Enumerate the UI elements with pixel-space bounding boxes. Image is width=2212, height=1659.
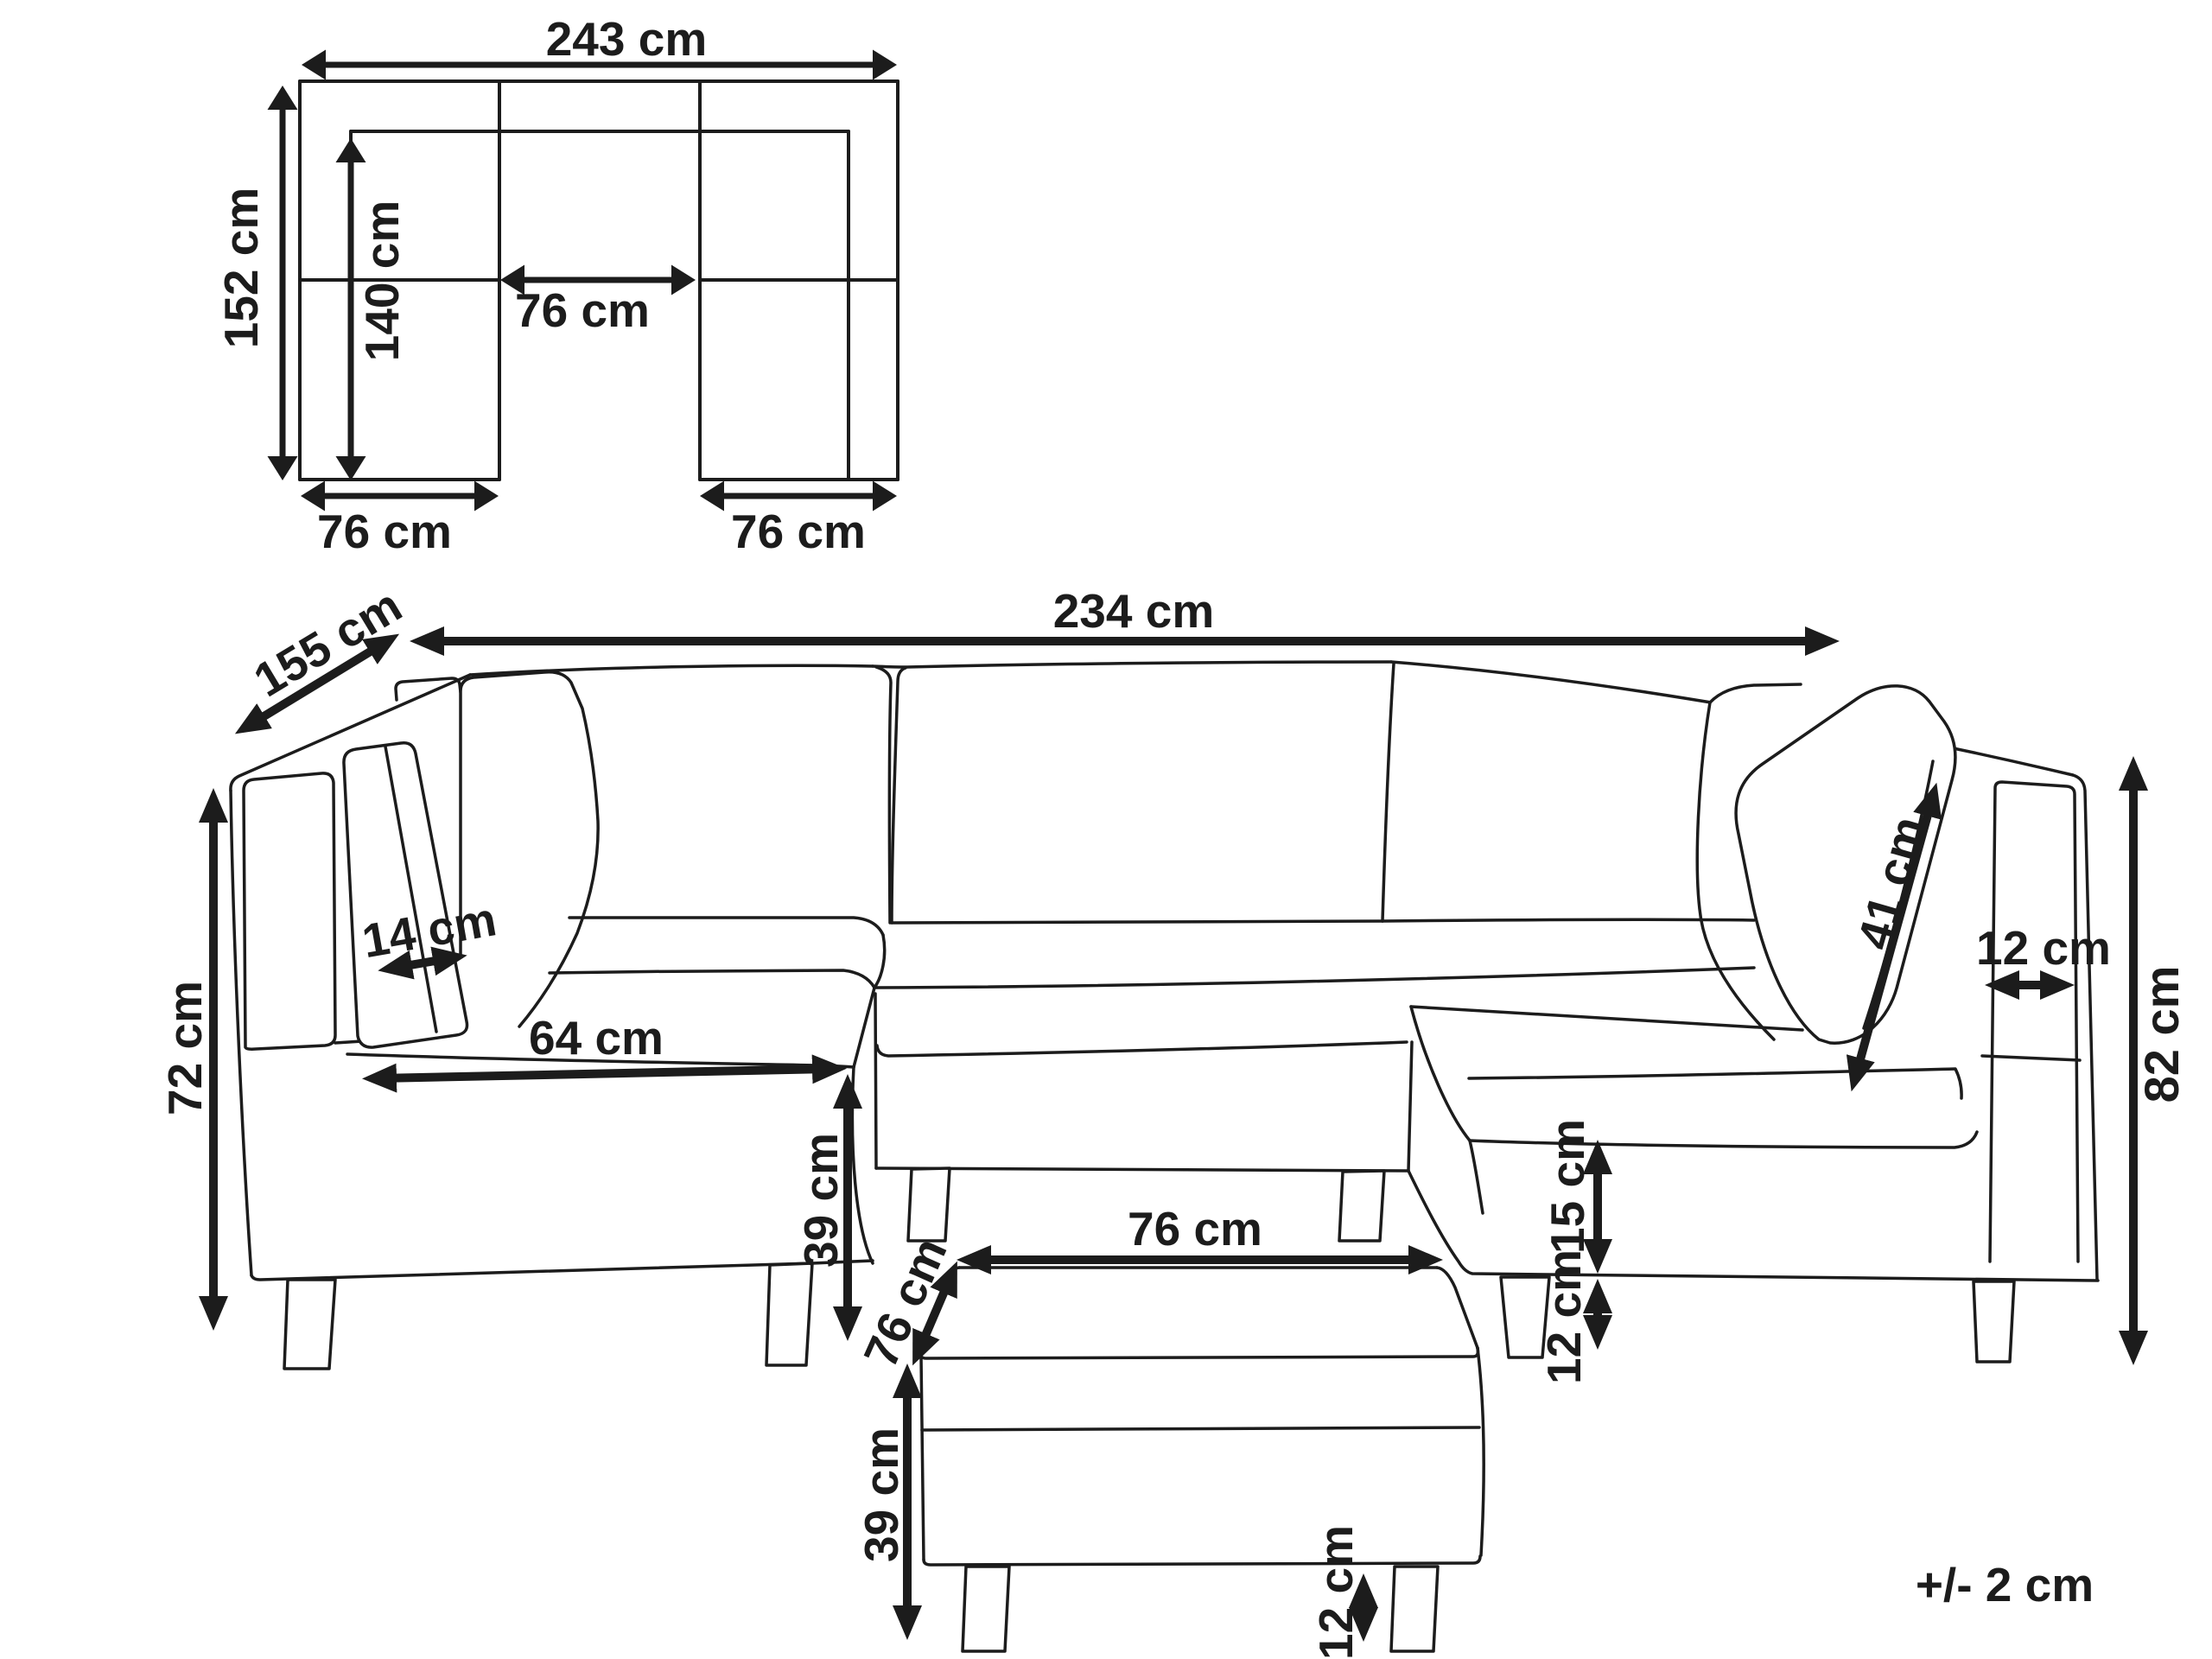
svg-text:76 cm: 76 cm bbox=[317, 505, 452, 558]
svg-text:12 cm: 12 cm bbox=[1309, 1525, 1363, 1659]
svg-text:152 cm: 152 cm bbox=[214, 188, 268, 349]
svg-text:140 cm: 140 cm bbox=[355, 200, 409, 362]
svg-text:39 cm: 39 cm bbox=[794, 1133, 848, 1268]
svg-text:76 cm: 76 cm bbox=[515, 283, 650, 337]
svg-text:+/- 2 cm: +/- 2 cm bbox=[1916, 1558, 2094, 1611]
svg-text:243 cm: 243 cm bbox=[546, 12, 708, 66]
svg-text:155 cm: 155 cm bbox=[245, 578, 410, 707]
svg-text:234 cm: 234 cm bbox=[1053, 584, 1215, 638]
svg-text:72 cm: 72 cm bbox=[158, 981, 212, 1116]
svg-text:76 cm: 76 cm bbox=[731, 505, 866, 558]
svg-text:76 cm: 76 cm bbox=[1128, 1202, 1262, 1255]
svg-text:82 cm: 82 cm bbox=[2134, 966, 2189, 1103]
svg-text:15 cm: 15 cm bbox=[1541, 1119, 1594, 1254]
svg-text:12 cm: 12 cm bbox=[1537, 1249, 1591, 1384]
svg-text:64 cm: 64 cm bbox=[529, 1011, 664, 1065]
svg-text:39 cm: 39 cm bbox=[855, 1427, 908, 1562]
svg-text:12 cm: 12 cm bbox=[1976, 921, 2111, 975]
